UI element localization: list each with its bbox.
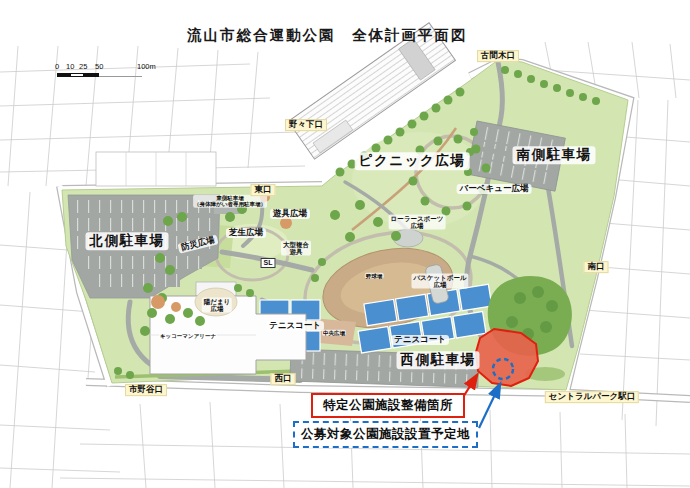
scale-tick-0: 0 — [55, 62, 59, 71]
west-parking-lot — [290, 349, 479, 388]
scale-tick-100: 100m — [137, 62, 156, 71]
scale-bar: 0 10 25 50 100m — [55, 62, 165, 84]
page-title: 流山市総合運動公園 全体計画平面図 — [187, 26, 468, 45]
scale-bar-segments — [57, 73, 142, 78]
scale-tick-50: 50 — [95, 62, 103, 71]
scale-tick-10: 10 — [66, 62, 74, 71]
scale-tick-25: 25 — [79, 62, 87, 71]
site-plan-page: 北側駐車場ピクニック広場南側駐車場西側駐車場バーベキュー広場ローラースポーツ 広… — [0, 0, 690, 488]
legend-proposed-label: 公募対象公園施設設置予定地 — [301, 426, 470, 443]
legend-specific-box: 特定公園施設整備箇所 — [311, 393, 465, 418]
legend-specific-label: 特定公園施設整備箇所 — [323, 397, 453, 414]
hidamari-plaza-shape — [195, 288, 237, 316]
legend-proposed-box: 公募対象公園施設設置予定地 — [293, 421, 478, 448]
